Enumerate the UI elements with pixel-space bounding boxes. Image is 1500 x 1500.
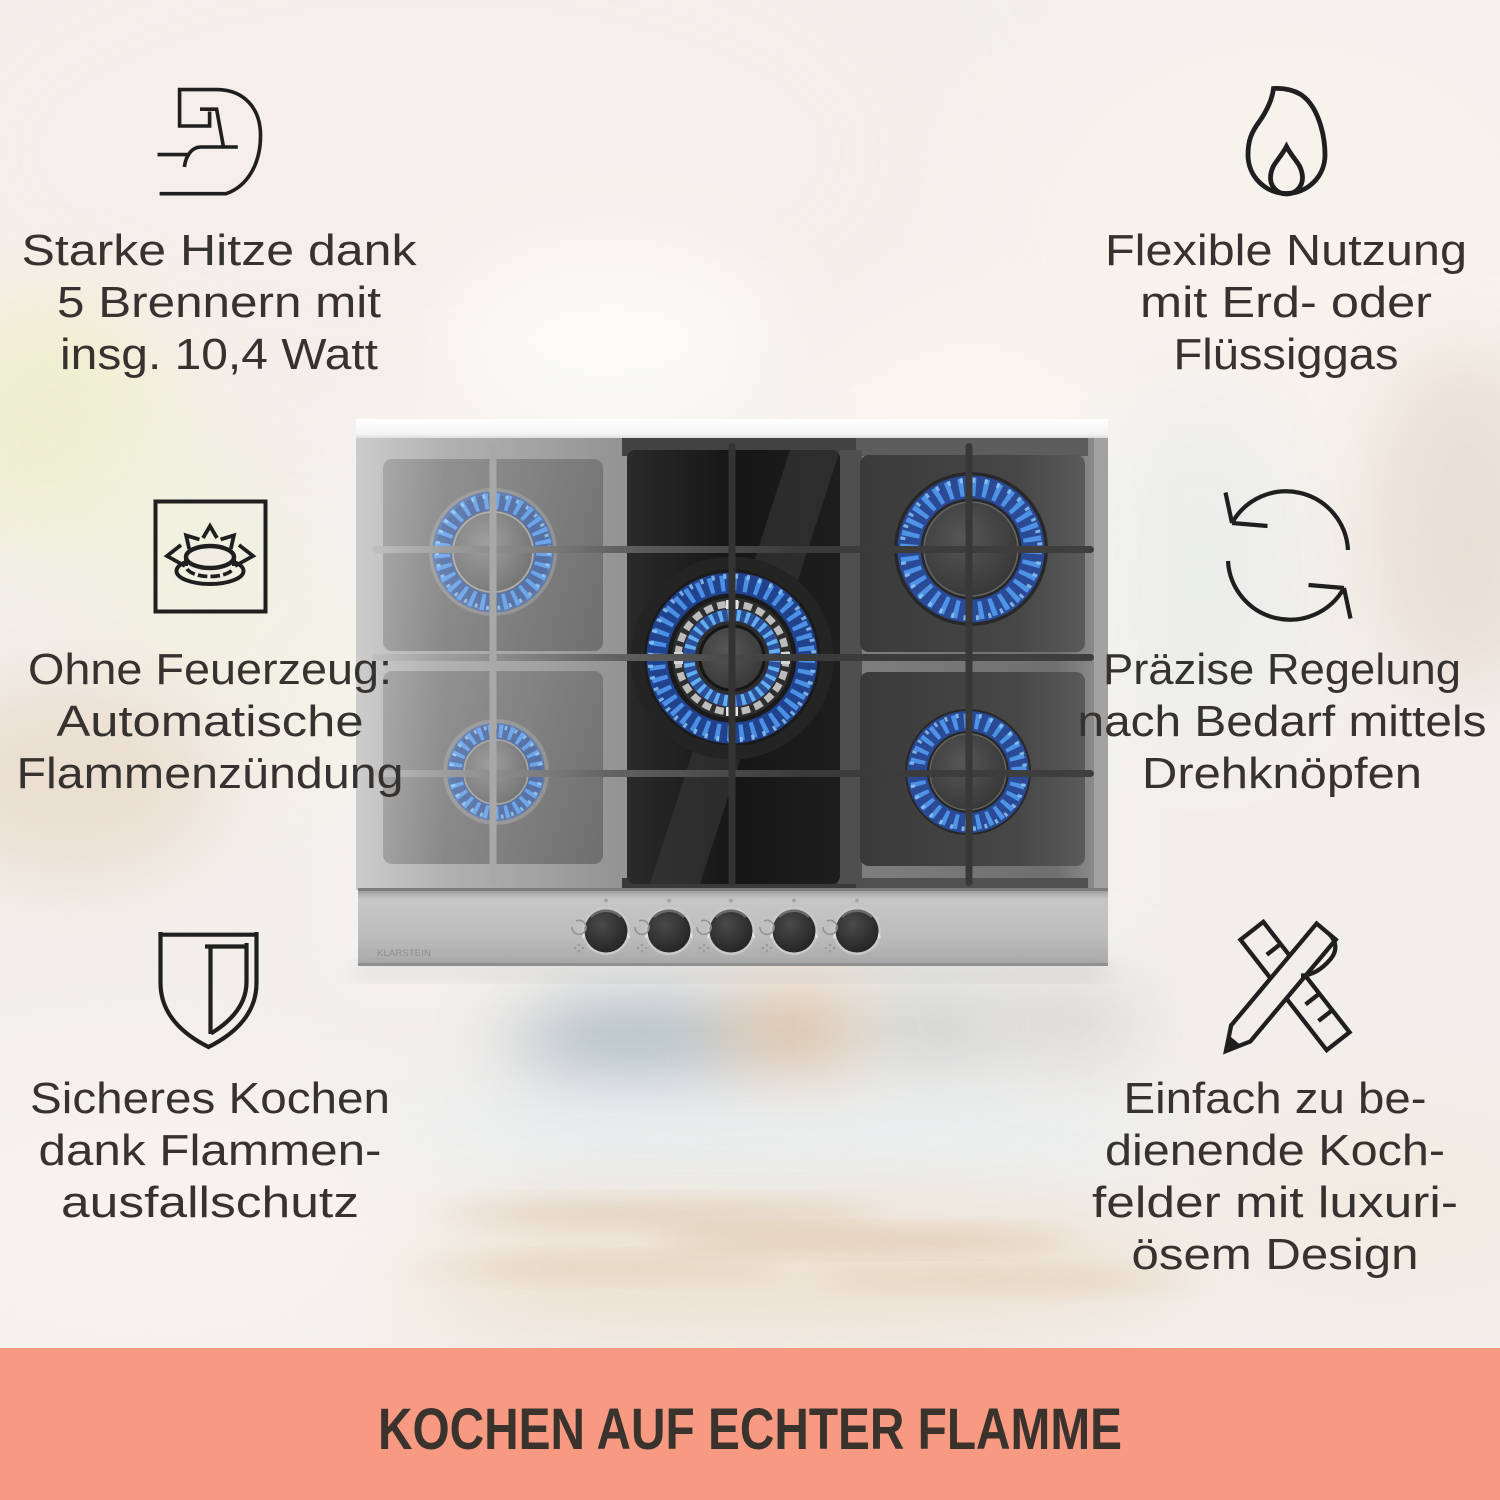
- svg-text:insg. 10,4 Watt: insg. 10,4 Watt: [60, 330, 378, 379]
- svg-text:mit Erd- oder: mit Erd- oder: [1140, 278, 1432, 327]
- svg-text:dienende Koch-: dienende Koch-: [1105, 1126, 1445, 1175]
- svg-text:nach Bedarf mittels: nach Bedarf mittels: [1078, 697, 1487, 746]
- svg-text:Starke Hitze dank: Starke Hitze dank: [22, 226, 418, 275]
- svg-text:Sicheres Kochen: Sicheres Kochen: [30, 1074, 390, 1123]
- svg-text:Flexible Nutzung: Flexible Nutzung: [1105, 226, 1467, 275]
- svg-text:Automatische: Automatische: [57, 697, 364, 746]
- svg-text:Präzise Regelung: Präzise Regelung: [1103, 645, 1461, 694]
- svg-text:KOCHEN AUF ECHTER FLAMME: KOCHEN AUF ECHTER FLAMME: [378, 1397, 1122, 1462]
- svg-text:Drehknöpfen: Drehknöpfen: [1142, 749, 1422, 798]
- svg-text:KLARSTEIN: KLARSTEIN: [377, 948, 431, 958]
- svg-text:Flammenzündung: Flammenzündung: [17, 749, 404, 798]
- svg-text:5 Brennern mit: 5 Brennern mit: [57, 278, 381, 327]
- svg-text:dank Flammen-: dank Flammen-: [39, 1126, 382, 1175]
- svg-text:Flüssiggas: Flüssiggas: [1174, 330, 1399, 379]
- svg-text:ausfallschutz: ausfallschutz: [61, 1178, 359, 1227]
- svg-text:felder mit luxuri-: felder mit luxuri-: [1092, 1178, 1458, 1227]
- svg-text:Einfach zu be-: Einfach zu be-: [1124, 1074, 1427, 1123]
- svg-text:Ohne Feuerzeug:: Ohne Feuerzeug:: [28, 645, 392, 694]
- svg-text:ösem Design: ösem Design: [1132, 1230, 1419, 1279]
